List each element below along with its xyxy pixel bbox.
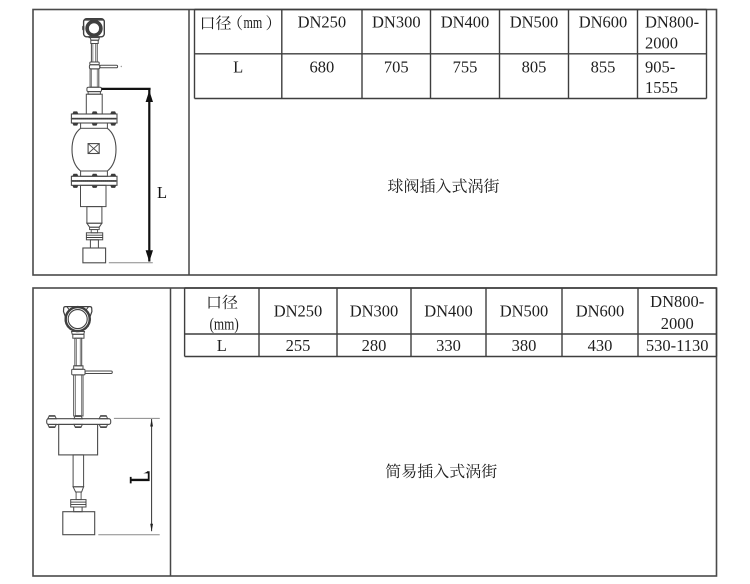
svg-text:330: 330 bbox=[436, 336, 461, 355]
svg-text:2000: 2000 bbox=[645, 34, 678, 53]
svg-text:DN250: DN250 bbox=[274, 302, 323, 321]
svg-text:(mm): (mm) bbox=[210, 316, 239, 334]
svg-text:mm: mm bbox=[244, 14, 263, 32]
svg-text:L: L bbox=[157, 183, 167, 202]
svg-text:DN600: DN600 bbox=[579, 13, 628, 32]
svg-text:DN800-: DN800- bbox=[645, 13, 699, 32]
svg-text:430: 430 bbox=[588, 336, 613, 355]
svg-text:DN250: DN250 bbox=[298, 13, 347, 32]
svg-text:855: 855 bbox=[591, 57, 616, 76]
svg-text:L: L bbox=[217, 336, 227, 355]
svg-text:680: 680 bbox=[310, 57, 335, 76]
svg-text:DN800-: DN800- bbox=[650, 292, 704, 311]
svg-text:755: 755 bbox=[453, 57, 478, 76]
svg-text:255: 255 bbox=[286, 336, 311, 355]
svg-text:DN300: DN300 bbox=[350, 302, 399, 321]
svg-text:905-: 905- bbox=[645, 57, 675, 76]
svg-text:DN300: DN300 bbox=[372, 13, 421, 32]
svg-text:2000: 2000 bbox=[661, 314, 694, 333]
svg-text:DN500: DN500 bbox=[510, 13, 559, 32]
svg-text:1555: 1555 bbox=[645, 78, 678, 97]
svg-text:705: 705 bbox=[384, 57, 409, 76]
svg-text:805: 805 bbox=[522, 57, 547, 76]
svg-text:380: 380 bbox=[512, 336, 537, 355]
svg-text:L: L bbox=[233, 57, 243, 76]
svg-text:DN400: DN400 bbox=[424, 302, 473, 321]
svg-text:280: 280 bbox=[362, 336, 387, 355]
svg-text:DN600: DN600 bbox=[576, 302, 625, 321]
svg-text:DN400: DN400 bbox=[441, 13, 490, 32]
svg-text:530-1130: 530-1130 bbox=[646, 336, 709, 355]
svg-text:DN500: DN500 bbox=[500, 302, 549, 321]
